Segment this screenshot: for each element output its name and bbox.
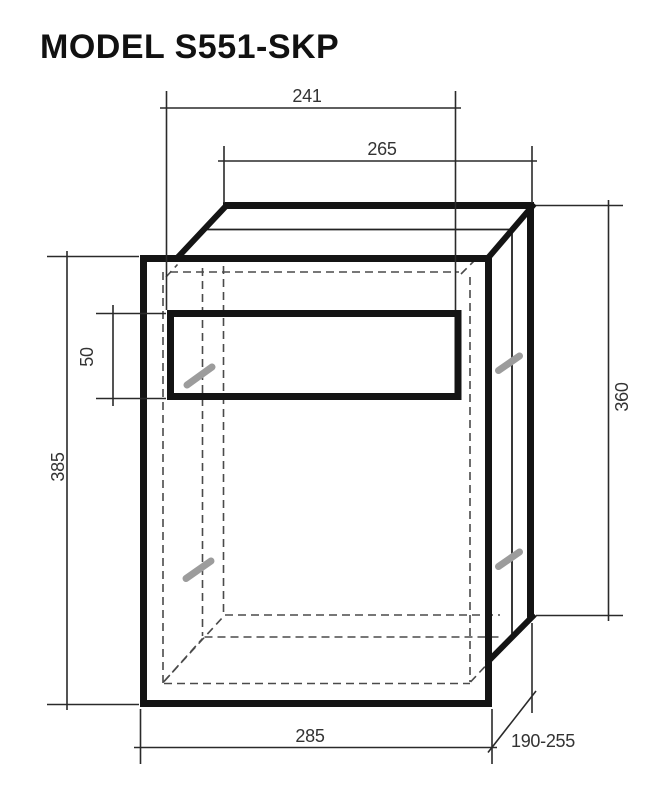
technical-drawing: MODEL S551-SKP 241 265 50 385 360 285 19… — [0, 0, 671, 794]
hidden-edge-bottom-left-diagonal-min — [165, 639, 203, 682]
dim-label-slot-width: 241 — [292, 86, 321, 106]
drawing-sheet: MODEL S551-SKP 241 265 50 385 360 285 19… — [0, 0, 671, 794]
dim-label-frame-width: 285 — [295, 726, 324, 746]
dim-label-body-height: 360 — [612, 382, 632, 411]
slot-opening-outline — [171, 314, 459, 397]
dimension-lines-group — [47, 91, 623, 764]
dim-label-slot-height: 50 — [77, 347, 97, 367]
hidden-edge-top-right-stub — [461, 261, 475, 275]
screws-group — [186, 356, 520, 579]
labels-group: MODEL S551-SKP 241 265 50 385 360 285 19… — [40, 28, 632, 751]
seam-lines-group — [203, 230, 514, 638]
hidden-edge-top-left-stub — [166, 265, 178, 278]
dim-label-body-width: 265 — [367, 139, 396, 159]
hidden-edges-group — [163, 261, 500, 684]
dim-label-frame-height: 385 — [48, 452, 68, 481]
top-face-right-edge — [488, 206, 533, 258]
dim-label-depth-range: 190-255 — [511, 731, 575, 751]
drawing-title: MODEL S551-SKP — [40, 28, 339, 66]
top-face-left-edge — [179, 207, 226, 257]
side-face-bottom-edge — [489, 617, 533, 661]
screw-mark-right-lower — [499, 552, 520, 567]
screw-mark-left-lower — [186, 561, 211, 579]
screw-mark-left-upper — [187, 367, 212, 385]
screw-mark-right-upper — [499, 356, 520, 371]
